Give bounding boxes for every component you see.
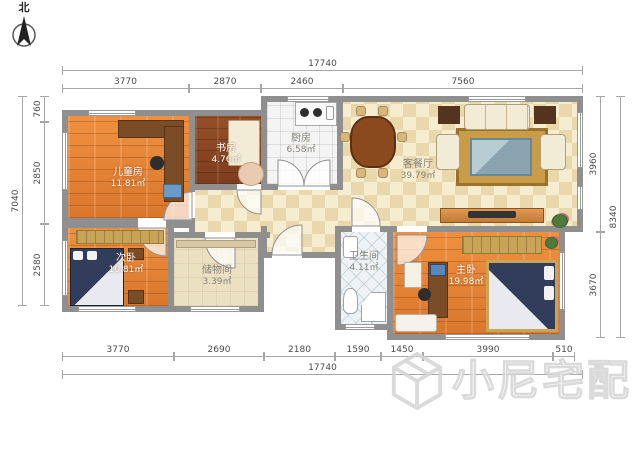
room-name: 次卧: [96, 252, 156, 265]
pillow: [73, 251, 83, 260]
dim-bottom-total: 17740: [62, 374, 583, 375]
dining-chair: [356, 168, 366, 178]
entry-nook-floor: [267, 226, 335, 252]
dim-right-seg: 3960: [600, 96, 601, 232]
master-wardrobe: [462, 236, 542, 254]
window: [62, 132, 68, 190]
dining-chair: [356, 106, 366, 116]
wall: [335, 226, 341, 330]
dim-left-seg: 2850: [44, 122, 45, 224]
bench: [395, 314, 437, 332]
kitchen-sink: [326, 106, 334, 120]
room-area: 39.79㎡: [386, 171, 450, 183]
north-indicator: 北: [8, 2, 40, 55]
room-area: 11.81㎡: [88, 179, 168, 191]
dim-top-seg: 3770: [62, 88, 189, 89]
room-name: 儿童房: [88, 166, 168, 179]
nightstand: [128, 290, 144, 304]
window: [88, 110, 136, 116]
small-table: [404, 262, 422, 288]
floor-plan: 儿童房 11.81㎡ 书房 4.76㎡ 厨房 6.58㎡ 客餐厅 39.79㎡ …: [0, 0, 640, 457]
wall: [337, 96, 343, 190]
window: [577, 186, 583, 210]
toilet: [343, 288, 358, 314]
room-label-bathroom: 卫生间 4.11㎡: [338, 250, 390, 275]
dining-chair: [397, 132, 407, 142]
watermark-logo-icon: [388, 350, 446, 412]
room-label-living: 客餐厅 39.79㎡: [386, 158, 450, 183]
dim-left-seg: 2580: [44, 224, 45, 306]
room-name: 书房: [198, 142, 254, 155]
room-label-master: 主卧 19.98㎡: [436, 264, 496, 289]
dim-bottom-seg: 3990: [423, 356, 553, 357]
room-area: 3.39㎡: [182, 277, 252, 289]
window: [78, 306, 136, 312]
side-table: [438, 106, 460, 124]
stove-burner: [300, 108, 309, 117]
room-label-study: 书房 4.76㎡: [198, 142, 254, 167]
plant: [552, 214, 568, 228]
dim-left-total: 7040: [22, 96, 23, 306]
wall: [261, 184, 278, 190]
room-area: 4.11㎡: [338, 263, 390, 275]
room-area: 19.98㎡: [436, 277, 496, 289]
room-area: 6.58㎡: [270, 145, 332, 157]
dim-bottom-seg: 3770: [62, 356, 174, 357]
wall: [62, 218, 138, 228]
sofa: [464, 104, 530, 130]
desk-chair: [418, 288, 431, 301]
window: [559, 252, 565, 310]
wall: [387, 226, 397, 232]
north-label: 北: [8, 2, 40, 13]
wall: [387, 226, 393, 340]
dim-top-seg: 7560: [343, 88, 583, 89]
room-name: 主卧: [436, 264, 496, 277]
room-label-secondary: 次卧 10.81㎡: [96, 252, 156, 277]
window: [445, 334, 530, 340]
room-label-storage: 储物间 3.39㎡: [182, 264, 252, 289]
wall: [261, 252, 272, 258]
coffee-table: [470, 138, 532, 176]
wall: [189, 110, 195, 192]
wall: [189, 184, 237, 190]
dim-left-seg: 760: [44, 96, 45, 122]
room-name: 储物间: [182, 264, 252, 277]
dim-top-seg: 2870: [189, 88, 261, 89]
pillow: [544, 266, 554, 280]
window: [62, 240, 68, 296]
room-label-kitchen: 厨房 6.58㎡: [270, 132, 332, 157]
watermark: 小尼宅配: [388, 350, 632, 412]
room-name: 卫生间: [338, 250, 390, 263]
armchair: [540, 134, 566, 170]
dim-bottom-seg: 510: [553, 356, 575, 357]
window: [468, 96, 526, 102]
wall: [168, 232, 205, 238]
wall: [330, 184, 343, 190]
dim-bottom-seg: 2690: [174, 356, 264, 357]
storage-shelf: [176, 240, 256, 248]
secondary-wardrobe: [76, 230, 164, 244]
dim-bottom-seg: 1450: [381, 356, 423, 357]
room-name: 厨房: [270, 132, 332, 145]
dim-right-seg: 3670: [600, 232, 601, 338]
pillow: [544, 286, 554, 300]
room-area: 4.76㎡: [198, 155, 254, 167]
stove-burner: [313, 108, 322, 117]
dim-top-seg: 2460: [261, 88, 343, 89]
plant: [545, 237, 558, 249]
dim-right-total: 8340: [620, 96, 621, 338]
dim-bottom-seg: 2180: [264, 356, 335, 357]
side-table: [534, 106, 556, 124]
dining-chair: [378, 106, 388, 116]
window: [345, 324, 375, 330]
room-label-children: 儿童房 11.81㎡: [88, 166, 168, 191]
dining-chair: [340, 132, 350, 142]
north-compass-icon: [9, 13, 39, 51]
window: [577, 112, 583, 168]
dim-bottom-seg: 1590: [335, 356, 381, 357]
window: [190, 306, 240, 312]
room-name: 客餐厅: [386, 158, 450, 171]
dim-top-total: 17740: [62, 70, 583, 71]
tv: [468, 211, 516, 218]
room-area: 10.81㎡: [96, 265, 156, 277]
